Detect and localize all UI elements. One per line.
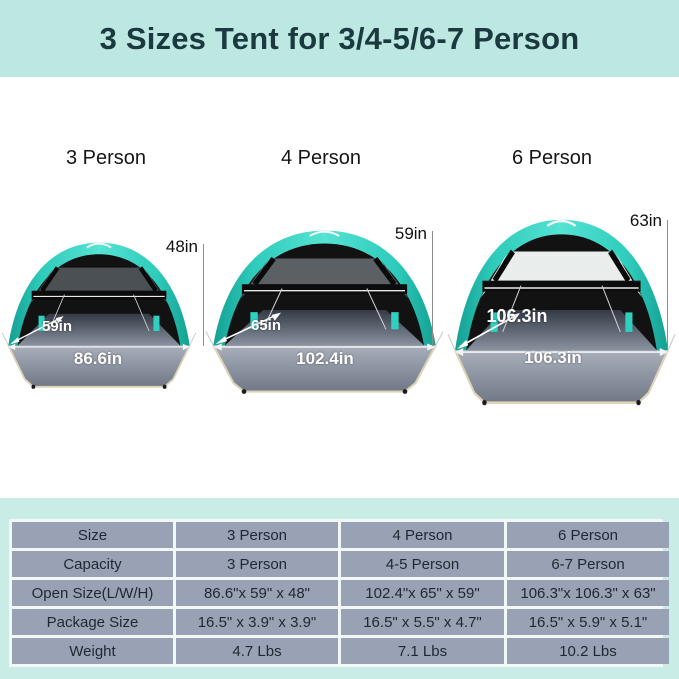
row-capacity-3person: 3 Person — [176, 551, 338, 577]
spec-table: Size 3 Person 4 Person 6 Person Capacity… — [9, 519, 663, 667]
height-dim-3person: 48in — [158, 237, 198, 257]
row-capacity-label: Capacity — [12, 551, 173, 577]
row-package-6person: 16.5" x 5.9" x 5.1" — [507, 609, 669, 635]
row-package-label: Package Size — [12, 609, 173, 635]
row-capacity-6person: 6-7 Person — [507, 551, 669, 577]
tent-caption-4person: 4 Person — [256, 147, 386, 170]
product-infographic: 3 Sizes Tent for 3/4-5/6-7 Person 3 Pers… — [0, 0, 679, 679]
row-package-4person: 16.5" x 5.5" x 4.7" — [341, 609, 504, 635]
tent-caption-3person: 3 Person — [41, 147, 171, 170]
depth-dim-6person: 106.3in — [472, 306, 562, 327]
banner-title: 3 Sizes Tent for 3/4-5/6-7 Person — [100, 21, 580, 57]
height-line-3person — [203, 244, 204, 346]
width-dim-3person: 86.6in — [53, 349, 143, 369]
row-capacity-4person: 4-5 Person — [341, 551, 504, 577]
width-dim-4person: 102.4in — [280, 349, 370, 369]
row-opensize-3person: 86.6"x 59" x 48" — [176, 580, 338, 606]
height-line-6person — [667, 220, 668, 350]
height-line-4person — [432, 231, 433, 346]
height-dim-4person: 59in — [387, 224, 427, 244]
row-size-label: Size — [12, 522, 173, 548]
row-package-3person: 16.5" x 3.9" x 3.9" — [176, 609, 338, 635]
row-opensize-label: Open Size(L/W/H) — [12, 580, 173, 606]
row-weight-4person: 7.1 Lbs — [341, 638, 504, 664]
row-weight-6person: 10.2 Lbs — [507, 638, 669, 664]
banner: 3 Sizes Tent for 3/4-5/6-7 Person — [0, 0, 679, 77]
row-size-4person: 4 Person — [341, 522, 504, 548]
depth-dim-3person: 59in — [27, 318, 87, 335]
row-size-6person: 6 Person — [507, 522, 669, 548]
row-size-3person: 3 Person — [176, 522, 338, 548]
row-opensize-6person: 106.3"x 106.3" x 63" — [507, 580, 669, 606]
width-dim-6person: 106.3in — [508, 348, 598, 368]
height-dim-6person: 63in — [622, 211, 662, 231]
tents-section: 3 Person 4 Person 6 Person 48in 59in 86.… — [0, 77, 679, 498]
row-weight-3person: 4.7 Lbs — [176, 638, 338, 664]
tent-caption-6person: 6 Person — [487, 147, 617, 170]
row-opensize-4person: 102.4"x 65" x 59" — [341, 580, 504, 606]
spec-section: Size 3 Person 4 Person 6 Person Capacity… — [0, 498, 679, 679]
depth-dim-4person: 65in — [236, 317, 296, 334]
row-weight-label: Weight — [12, 638, 173, 664]
